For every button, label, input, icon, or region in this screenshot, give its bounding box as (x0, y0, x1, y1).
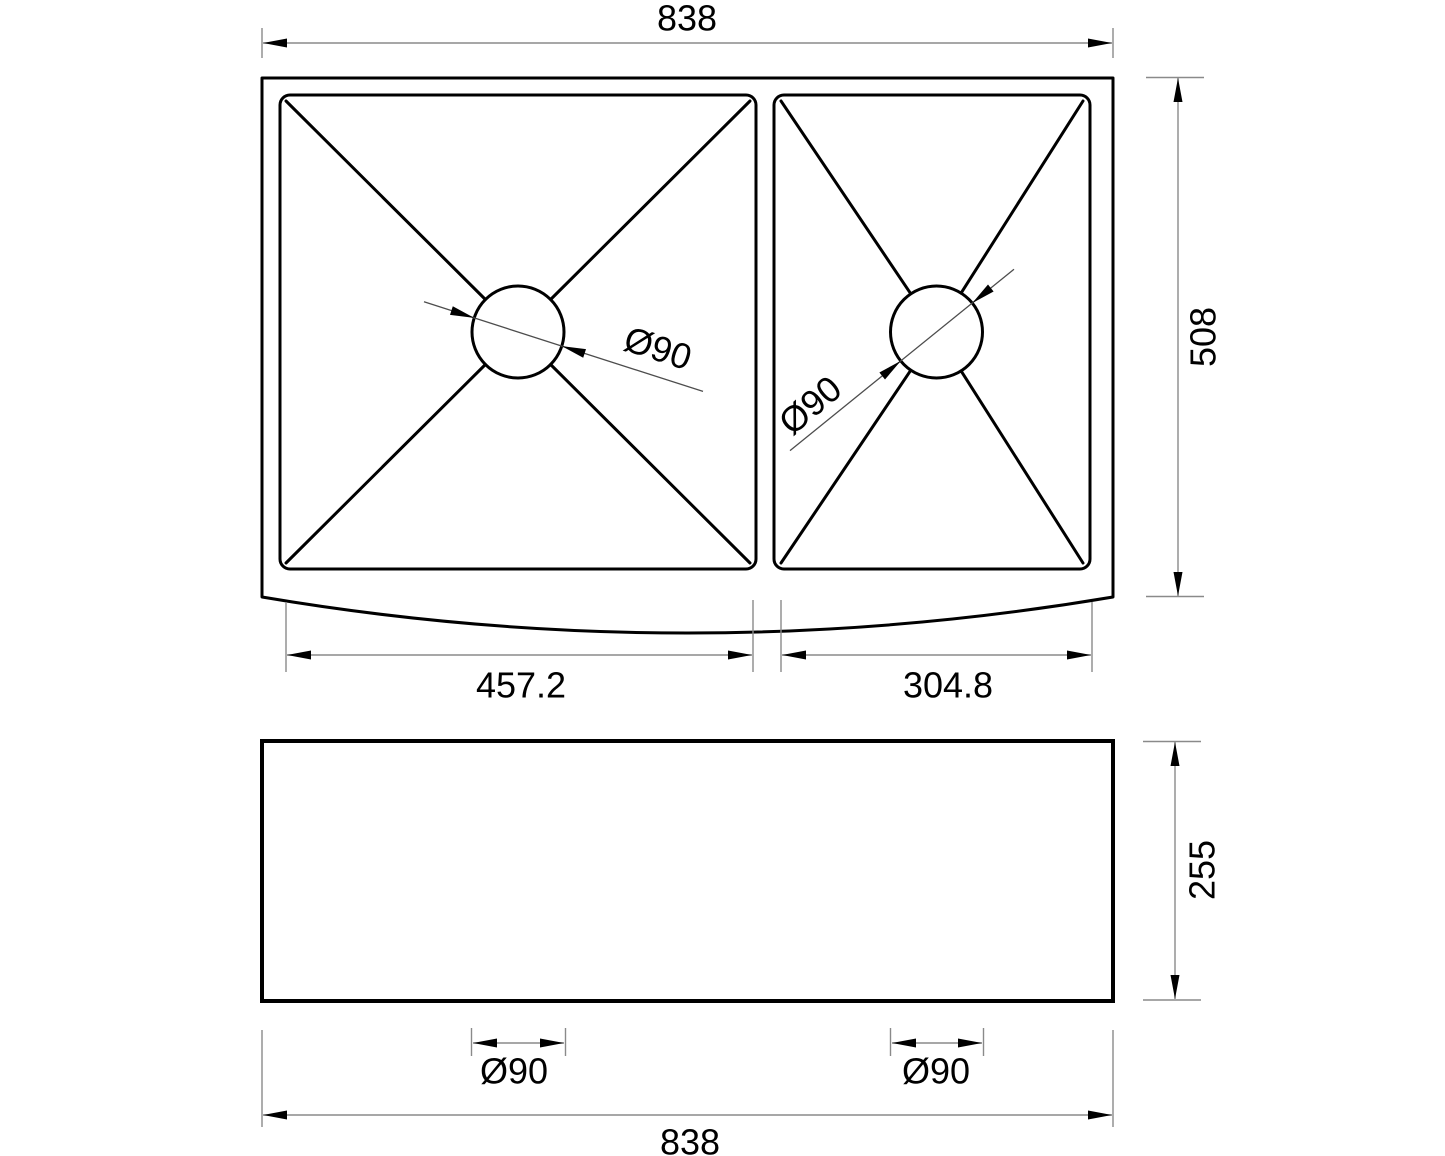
arrowhead-right (1088, 39, 1112, 48)
left-bowl-diagonal-tl (286, 101, 485, 300)
dim-front-height: 255 (1143, 742, 1223, 1001)
arrowhead-left (782, 651, 806, 660)
dim-value-front-left-drain: Ø90 (480, 1051, 548, 1092)
front-view: 255 Ø90 Ø90 (262, 741, 1223, 1156)
dim-right-bowl-width: 304.8 (781, 600, 1092, 706)
dim-value-838-bottom: 838 (660, 1122, 720, 1156)
drawing-svg: 838 508 Ø90 (0, 0, 1445, 1156)
dim-value-right-drain: Ø90 (771, 367, 849, 442)
dim-overall-depth: 508 (1146, 78, 1224, 597)
dim-value-left-drain: Ø90 (619, 318, 696, 378)
dim-value-front-right-drain: Ø90 (902, 1051, 970, 1092)
arrowhead-left (287, 651, 311, 660)
front-view-outline (262, 741, 1113, 1001)
arrowhead-top (1171, 742, 1180, 766)
arrowhead-lower-right (562, 346, 586, 358)
dim-front-left-drain: Ø90 (472, 1028, 566, 1092)
dim-value-838-top: 838 (657, 0, 717, 39)
dim-overall-width-bottom: 838 (262, 1030, 1113, 1156)
arrowhead-bottom (1171, 975, 1180, 999)
arrowhead-left (473, 1039, 497, 1048)
arrowhead-upper-left (450, 306, 474, 318)
dim-value-508: 508 (1183, 307, 1224, 367)
top-view: 838 508 Ø90 (262, 0, 1224, 706)
arrowhead-right (728, 651, 752, 660)
arrowhead-right (1088, 1111, 1112, 1120)
arrowhead-left (263, 1111, 287, 1120)
dim-value-457: 457.2 (476, 665, 566, 706)
right-bowl-diagonal-tl (781, 101, 911, 294)
dim-left-bowl-width: 457.2 (286, 600, 753, 706)
dim-value-255: 255 (1182, 840, 1223, 900)
arrowhead-left (892, 1039, 916, 1048)
right-bowl-diagonal-br (961, 371, 1083, 563)
dim-overall-width-top: 838 (262, 0, 1113, 58)
arrowhead-left (263, 39, 287, 48)
dim-front-right-drain: Ø90 (891, 1028, 984, 1092)
arrowhead-right (540, 1039, 564, 1048)
left-bowl-diagonal-br (551, 365, 750, 564)
arrowhead-right (958, 1039, 982, 1048)
arrowhead-upper-right (972, 285, 993, 304)
arrowhead-lower-left (879, 361, 900, 380)
dim-value-304: 304.8 (903, 665, 993, 706)
left-bowl-diagonal-bl (286, 365, 485, 564)
right-bowl-diagonal-tr (961, 101, 1083, 293)
arrowhead-right (1067, 651, 1091, 660)
arrowhead-bottom (1174, 572, 1183, 596)
sink-dimension-drawing: 838 508 Ø90 (0, 0, 1445, 1156)
dim-right-drain-diameter: Ø90 (771, 269, 1014, 450)
arrowhead-top (1174, 78, 1183, 102)
left-bowl-diagonal-tr (551, 101, 750, 300)
